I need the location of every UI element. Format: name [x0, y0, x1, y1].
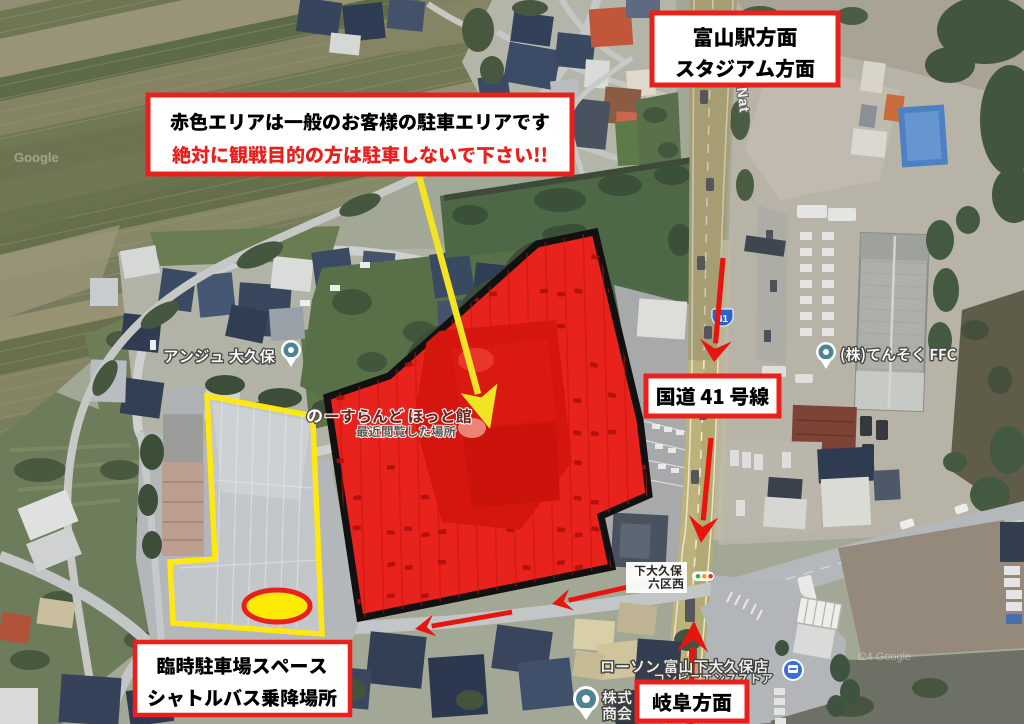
svg-text:Google: Google [14, 150, 59, 165]
svg-text:i24 Google: i24 Google [858, 651, 911, 663]
svg-text:Nat: Nat [734, 86, 753, 113]
